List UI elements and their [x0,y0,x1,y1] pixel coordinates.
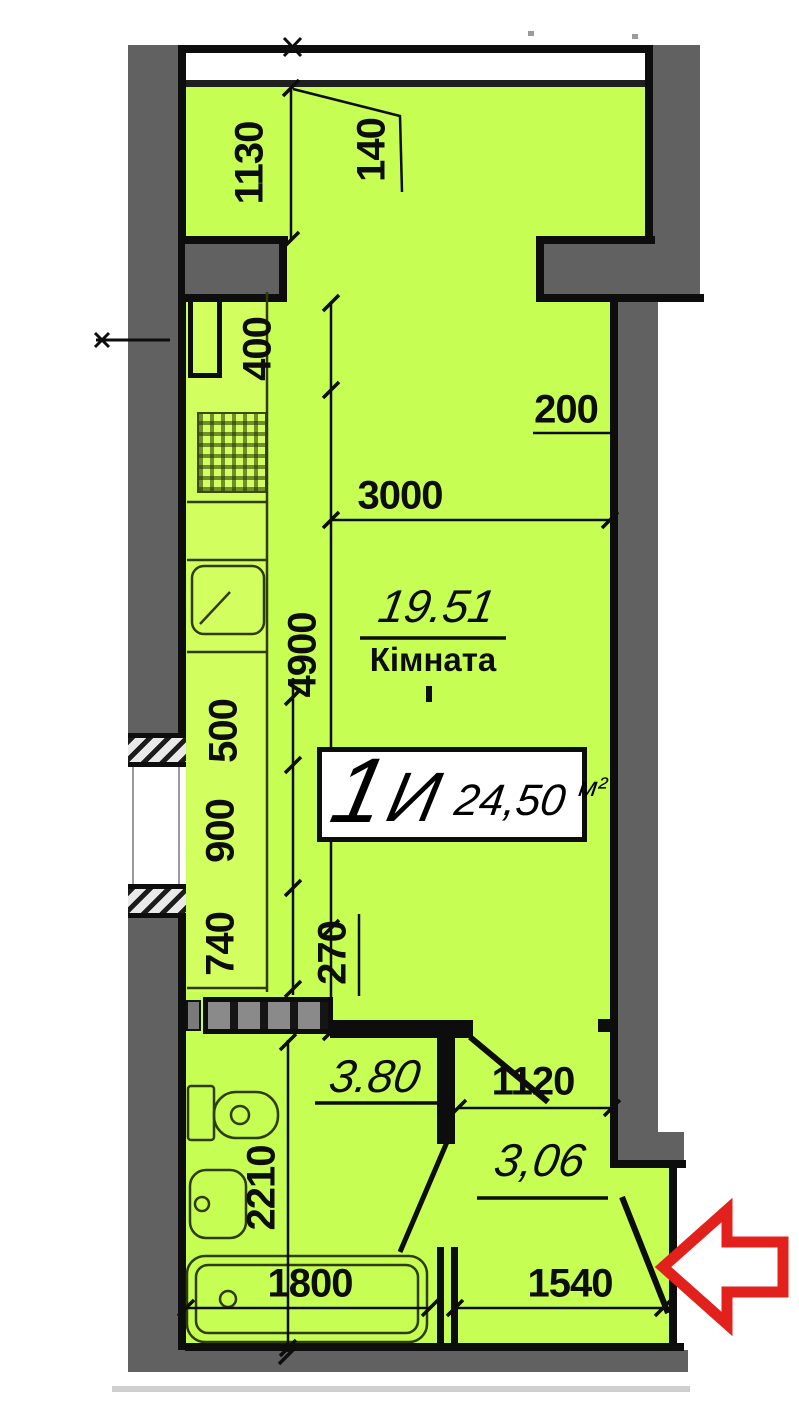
dim-500: 500 [202,699,247,763]
toilet-bowl [214,1092,278,1138]
washbasin-drain [195,1197,209,1211]
room-name-label: Кімната [370,641,497,679]
washbasin [190,1170,246,1238]
unit-series: И [382,762,447,832]
bathtub-faucet [220,1291,236,1307]
hallway-area-label: 3,06 [490,1133,589,1187]
dim-1120: 1120 [492,1060,575,1105]
toilet-drain [231,1106,249,1124]
unit-area-value: 24,50 [452,776,569,826]
kitchen-sink-faucet [200,592,230,624]
dim-900: 900 [199,799,244,863]
room-name-tick [426,686,432,702]
door-swing-bathroom [400,1142,447,1252]
dim-2210: 2210 [240,1146,285,1231]
counter-lines [187,292,267,992]
toilet-tank [188,1086,214,1140]
door-swing-entrance [622,1197,668,1313]
dim-140: 140 [350,118,395,182]
mark-left-wall [95,333,170,347]
wall-right-stop-mark [598,1019,618,1032]
mark-dot-a [528,31,534,36]
kitchen-sink [192,566,264,634]
dim-400: 400 [236,317,281,381]
mark-dot-b [632,34,638,39]
room-area-label: 19.51 [375,579,500,633]
unit-area-unit: м² [577,772,609,803]
dim-740: 740 [199,912,244,976]
dim-1540: 1540 [528,1262,613,1307]
dim-3000: 3000 [358,474,443,519]
entrance-arrow-icon [663,1210,783,1324]
plan-linework [0,0,799,1420]
dim-200: 200 [534,388,598,433]
dim-4900: 4900 [281,613,326,698]
dim-1800: 1800 [268,1262,353,1307]
unit-title-block: 1 И 24,50 м² [317,747,587,842]
floor-plan: 1130 140 400 200 3000 4900 500 900 740 2… [0,0,799,1420]
dim-270: 270 [311,921,356,985]
bathroom-area-label: 3.80 [325,1049,424,1103]
dim-1130: 1130 [228,122,273,205]
mark-top-wall [284,38,301,56]
